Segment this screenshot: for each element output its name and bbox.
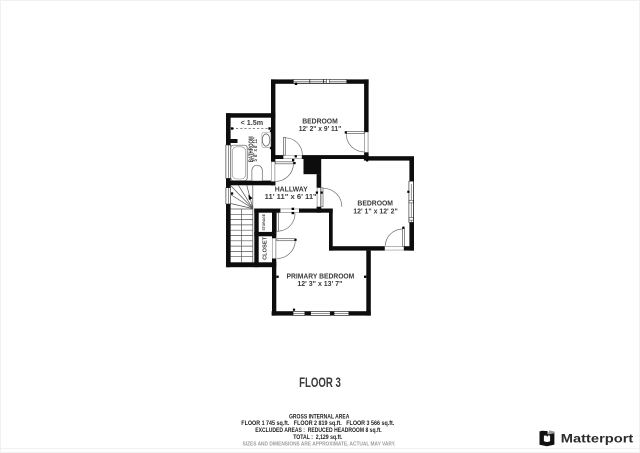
svg-text:TOTAL : 2,129 sq.ft.: TOTAL : 2,129 sq.ft. xyxy=(293,434,342,441)
svg-text:12' 2" x 9' 11": 12' 2" x 9' 11" xyxy=(299,126,342,133)
svg-text:CLOSET: CLOSET xyxy=(262,236,268,260)
svg-text:FLOOR 3: FLOOR 3 xyxy=(299,375,341,390)
svg-text:12' 1" x 12' 2": 12' 1" x 12' 2" xyxy=(353,208,398,215)
svg-text:11' 11" x 6' 11": 11' 11" x 6' 11" xyxy=(265,194,317,201)
svg-text:BEDROOM: BEDROOM xyxy=(302,116,338,125)
svg-text:Matterport: Matterport xyxy=(561,432,634,445)
svg-text:SIZES AND DIMENSIONS ARE APPRO: SIZES AND DIMENSIONS ARE APPROXIMATE, AC… xyxy=(243,441,396,447)
svg-text:< 1.5m: < 1.5m xyxy=(241,120,264,127)
svg-text:PRIMARY BEDROOM: PRIMARY BEDROOM xyxy=(287,271,355,280)
svg-text:12' 3" x 13' 7": 12' 3" x 13' 7" xyxy=(297,281,342,288)
svg-text:HALLWAY: HALLWAY xyxy=(275,184,308,193)
svg-text:5' 8" x 8' 11": 5' 8" x 8' 11" xyxy=(253,137,259,162)
svg-text:STORAGE: STORAGE xyxy=(262,213,266,230)
svg-text:BEDROOM: BEDROOM xyxy=(357,199,393,208)
